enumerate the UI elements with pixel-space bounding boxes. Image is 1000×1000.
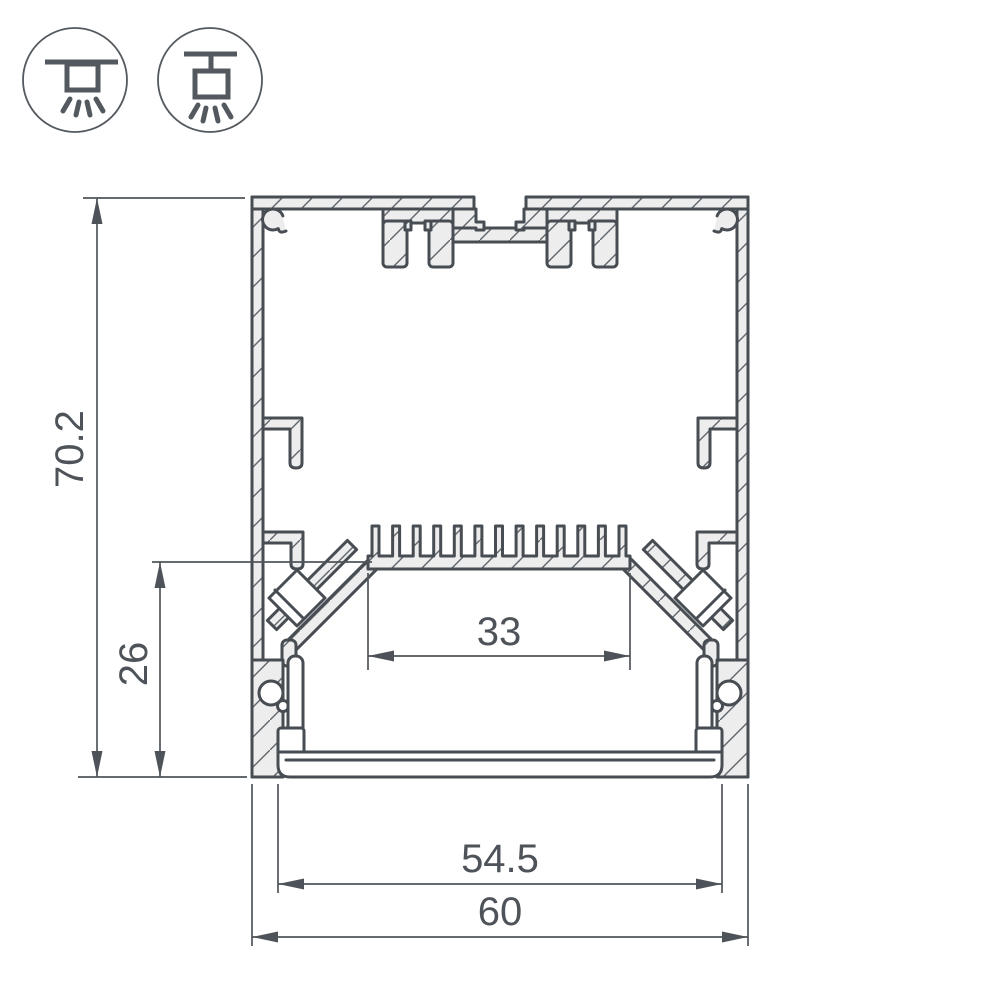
light-rays	[191, 105, 231, 121]
luminaire-body	[195, 71, 228, 97]
channel-prong	[383, 221, 407, 267]
arrowhead-up	[92, 198, 103, 224]
surface-mount-light-icon	[23, 28, 127, 132]
arrowhead-right	[722, 932, 748, 943]
profile-cross-section	[252, 197, 748, 777]
dimension-label-diffuser-width: 54.5	[461, 837, 539, 881]
channel-prong	[429, 221, 453, 267]
arrowhead-down	[155, 751, 166, 777]
clip-foot-left	[278, 728, 304, 754]
center-web	[452, 228, 548, 242]
light-rays	[63, 99, 103, 115]
arrowhead-down	[92, 751, 103, 777]
channel-lip	[425, 221, 431, 230]
dimension-label-overall-height: 70.2	[48, 410, 92, 488]
corner-screw-boss-left	[263, 209, 286, 232]
center-tab-right	[516, 209, 548, 230]
dimension-label-overall-width: 60	[478, 890, 523, 934]
screw-channel-left	[383, 209, 453, 267]
arrowhead-left	[278, 879, 304, 890]
screw-channel-right	[547, 209, 617, 267]
top-wall-right	[526, 197, 748, 209]
top-wall-left	[252, 197, 474, 209]
channel-lip	[405, 221, 411, 230]
diffuser-cover	[278, 656, 722, 777]
upper-hook-right	[698, 418, 737, 468]
lower-hook-left	[263, 532, 303, 569]
arrowhead-left	[252, 932, 278, 943]
luminaire-body	[67, 64, 98, 90]
upper-hook-left	[263, 418, 302, 468]
diffuser-plate	[278, 752, 722, 777]
clip-bar-left	[288, 656, 303, 738]
pendant-mount-light-icon	[158, 28, 262, 132]
dimension-diffuser-width: 54.5	[278, 784, 722, 893]
dimension-label-inner-width: 33	[477, 610, 522, 654]
center-suspension-slot	[452, 209, 548, 242]
channel-lip	[589, 221, 595, 230]
arrowhead-right	[604, 651, 630, 662]
drawing-page: 70.2 26 33 54.5	[0, 0, 1000, 1000]
channel-prong	[547, 221, 571, 267]
corner-screw-boss-right	[714, 209, 737, 232]
channel-lip	[569, 221, 575, 230]
mounting-icons	[23, 28, 262, 132]
dimension-overall-height: 70.2	[48, 198, 247, 777]
arrowhead-right	[696, 879, 722, 890]
profile-body	[252, 197, 748, 777]
arrowhead-left	[368, 651, 394, 662]
clip-foot-right	[696, 728, 722, 754]
dimension-inner-width: 33	[368, 573, 630, 670]
technical-drawing-canvas: 70.2 26 33 54.5	[0, 0, 1000, 1000]
center-tab-left	[452, 209, 484, 230]
dimension-label-inner-height: 26	[112, 642, 156, 687]
lower-hook-right	[697, 532, 737, 569]
arrowhead-up	[155, 562, 166, 588]
finned-plate	[368, 526, 630, 569]
channel-prong	[593, 221, 617, 267]
clip-bar-right	[697, 656, 712, 738]
icon-circle	[158, 28, 262, 132]
